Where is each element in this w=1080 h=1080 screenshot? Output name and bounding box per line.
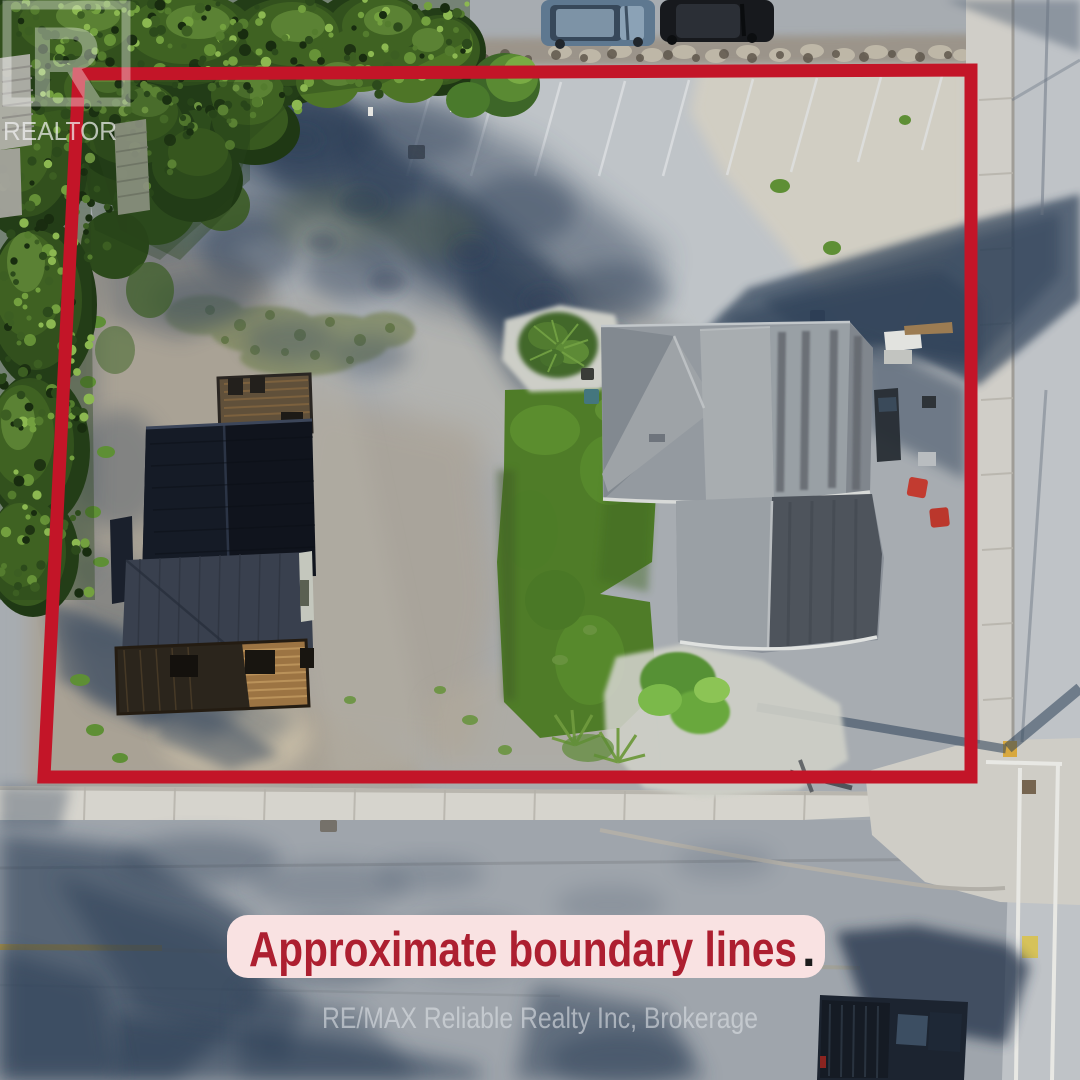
svg-text:.: .: [802, 923, 816, 977]
svg-text:REALTOR: REALTOR: [3, 116, 117, 146]
svg-text:Approximate boundary lines: Approximate boundary lines: [249, 923, 797, 977]
svg-text:RE/MAX Reliable Realty Inc, Br: RE/MAX Reliable Realty Inc, Brokerage: [322, 1002, 758, 1035]
svg-text:R: R: [28, 6, 103, 122]
